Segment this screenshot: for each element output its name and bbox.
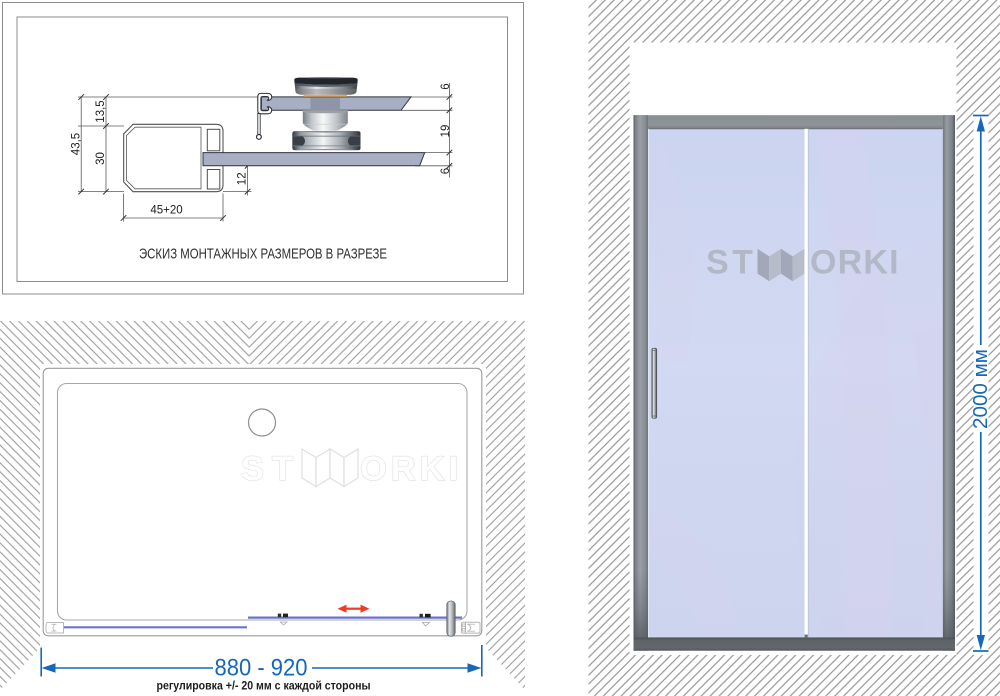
svg-text:43,5: 43,5 [71,133,83,155]
svg-text:6: 6 [440,83,452,89]
svg-text:19: 19 [440,125,452,138]
svg-text:6: 6 [440,168,452,174]
svg-text:ORKI: ORKI [810,244,900,282]
svg-text:ST: ST [706,244,756,282]
svg-text:30: 30 [95,152,107,165]
svg-text:регулировка +/- 20 мм с каждой: регулировка +/- 20 мм с каждой стороны [157,679,371,693]
svg-text:45+20: 45+20 [150,205,182,217]
svg-text:ST: ST [241,450,301,488]
svg-text:ORKI: ORKI [360,450,462,488]
svg-text:880 - 920: 880 - 920 [215,655,308,682]
svg-text:13,5: 13,5 [95,100,107,122]
svg-text:12: 12 [237,172,249,185]
svg-text:ЭСКИЗ МОНТАЖНЫХ РАЗМЕРОВ В РАЗ: ЭСКИЗ МОНТАЖНЫХ РАЗМЕРОВ В РАЗРЕЗЕ [139,247,387,263]
svg-text:2000 мм: 2000 мм [970,349,992,429]
